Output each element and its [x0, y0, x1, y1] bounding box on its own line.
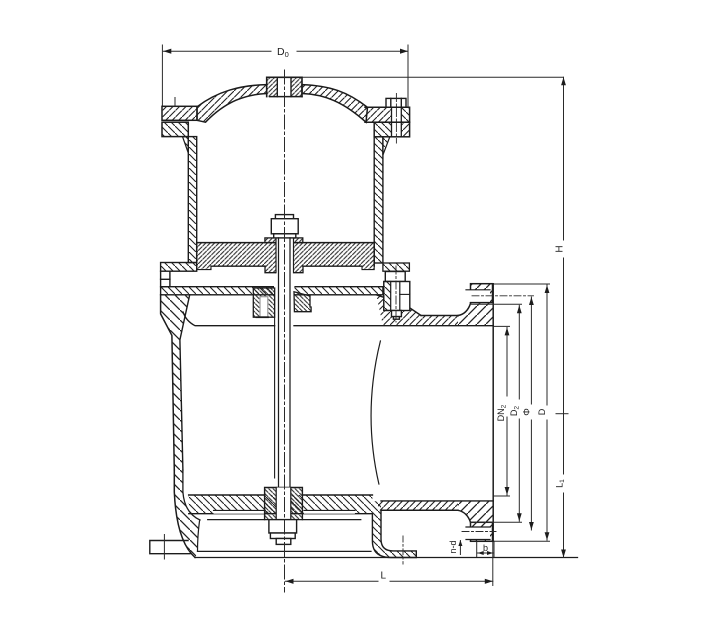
svg-text:D2: D2	[509, 406, 521, 417]
svg-text:n-d: n-d	[448, 540, 458, 553]
svg-text:L: L	[381, 571, 387, 582]
svg-text:D0: D0	[277, 46, 289, 59]
svg-text:L1: L1	[555, 479, 567, 488]
svg-text:DN2: DN2	[496, 404, 508, 421]
svg-text:b: b	[483, 543, 488, 553]
svg-text:D: D	[537, 408, 547, 415]
svg-text:H: H	[555, 245, 566, 252]
svg-text:Φ: Φ	[521, 408, 532, 416]
